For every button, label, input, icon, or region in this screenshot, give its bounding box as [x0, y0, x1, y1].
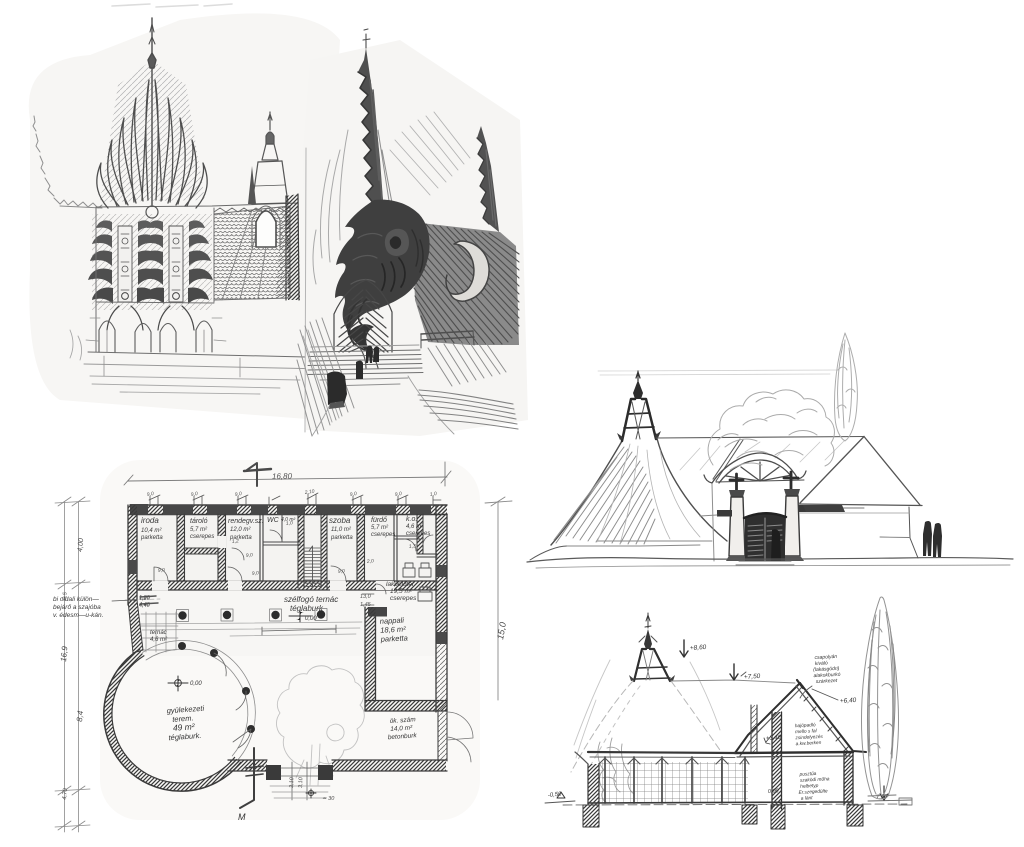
svg-text:5,7 m²: 5,7 m² [190, 527, 208, 533]
svg-text:helbetyp: helbetyp [800, 783, 819, 790]
svg-text:cserepes: cserepes [190, 534, 214, 540]
svg-text:1,2: 1,2 [232, 538, 240, 545]
svg-text:v. édesm—u-kán.: v. édesm—u-kán. [53, 612, 104, 619]
svg-text:4,6 m²: 4,6 m² [406, 524, 424, 530]
svg-text:0,00: 0,00 [768, 788, 780, 795]
svg-text:+7,50: +7,50 [744, 673, 761, 681]
svg-text:fürdő: fürdő [371, 517, 387, 524]
svg-text:2,0: 2,0 [366, 558, 375, 565]
svg-text:4,70: 4,70 [62, 787, 69, 800]
svg-text:3,10: 3,10 [289, 776, 295, 788]
svg-text:tároló: tároló [190, 518, 208, 525]
svg-text:16,9: 16,9 [59, 645, 69, 662]
svg-text:9,0: 9,0 [252, 570, 260, 577]
svg-text:1,0: 1,0 [286, 520, 294, 527]
svg-text:9,0: 9,0 [190, 491, 198, 498]
svg-text:≃ 30: ≃ 30 [322, 796, 335, 802]
svg-text:9,0: 9,0 [158, 567, 166, 574]
svg-text:parketta: parketta [330, 535, 353, 541]
svg-text:bi oldali külön—: bi oldali külön— [53, 596, 99, 603]
svg-text:hajópadló: hajópadló [795, 722, 816, 729]
svg-text:1,3: 1,3 [409, 543, 417, 550]
svg-text:pusztűa: pusztűa [798, 771, 816, 778]
svg-text:+3,40: +3,40 [766, 735, 782, 742]
svg-text:1,20: 1,20 [139, 596, 151, 602]
svg-text:k.o.: k.o. [406, 516, 417, 523]
svg-text:rendegv.sz.: rendegv.sz. [228, 518, 264, 525]
svg-text:parketta: parketta [379, 633, 408, 643]
svg-text:szoba: szoba [329, 516, 351, 525]
svg-text:5,7 m²: 5,7 m² [371, 525, 389, 531]
svg-text:parketta: parketta [140, 535, 163, 541]
svg-text:16,80: 16,80 [272, 472, 293, 481]
svg-text:10,4 m²: 10,4 m² [141, 528, 162, 534]
svg-text:ternác: ternác [150, 630, 167, 636]
svg-text:1,0: 1,0 [429, 491, 437, 498]
svg-text:WC: WC [267, 517, 280, 524]
svg-text:4,6 m²: 4,6 m² [150, 637, 168, 643]
svg-text:+6,40: +6,40 [840, 697, 857, 705]
svg-text:bejárő a szajóba: bejárő a szajóba [53, 604, 101, 611]
svg-text:4,00: 4,00 [77, 538, 85, 552]
svg-text:iroda: iroda [141, 516, 159, 525]
svg-text:szélfogó ternác: szélfogó ternác [284, 595, 338, 604]
svg-text:19,5 m²: 19,5 m² [390, 588, 413, 595]
svg-text:4,40: 4,40 [139, 603, 151, 609]
svg-text:0,00: 0,00 [305, 616, 317, 622]
svg-text:13,0: 13,0 [360, 594, 372, 600]
svg-text:9,0: 9,0 [349, 491, 357, 498]
svg-text:11,0 m²: 11,0 m² [331, 527, 352, 533]
svg-text:8,4: 8,4 [75, 710, 85, 722]
svg-text:mello s fal: mello s fal [795, 728, 818, 735]
svg-text:cserepes: cserepes [406, 531, 430, 537]
svg-text:9,0: 9,0 [394, 491, 402, 498]
svg-text:3,10: 3,10 [298, 776, 304, 788]
svg-text:12,0 m²: 12,0 m² [230, 527, 251, 533]
svg-text:M: M [238, 812, 246, 822]
svg-text:9,0: 9,0 [234, 491, 242, 498]
svg-text:9,0: 9,0 [338, 568, 346, 575]
svg-text:9,0: 9,0 [246, 552, 254, 559]
svg-text:a länt: a länt [801, 795, 814, 802]
svg-text:szárkezet: szárkezet [816, 678, 838, 685]
svg-text:9,0: 9,0 [146, 491, 154, 498]
svg-text:0,00: 0,00 [190, 681, 202, 687]
svg-text:+8,60: +8,60 [690, 644, 707, 652]
svg-text:cserepes: cserepes [371, 532, 395, 538]
svg-text:lakóelőtér: lakóelőtér [386, 581, 415, 588]
svg-text:cserepes: cserepes [390, 595, 417, 602]
